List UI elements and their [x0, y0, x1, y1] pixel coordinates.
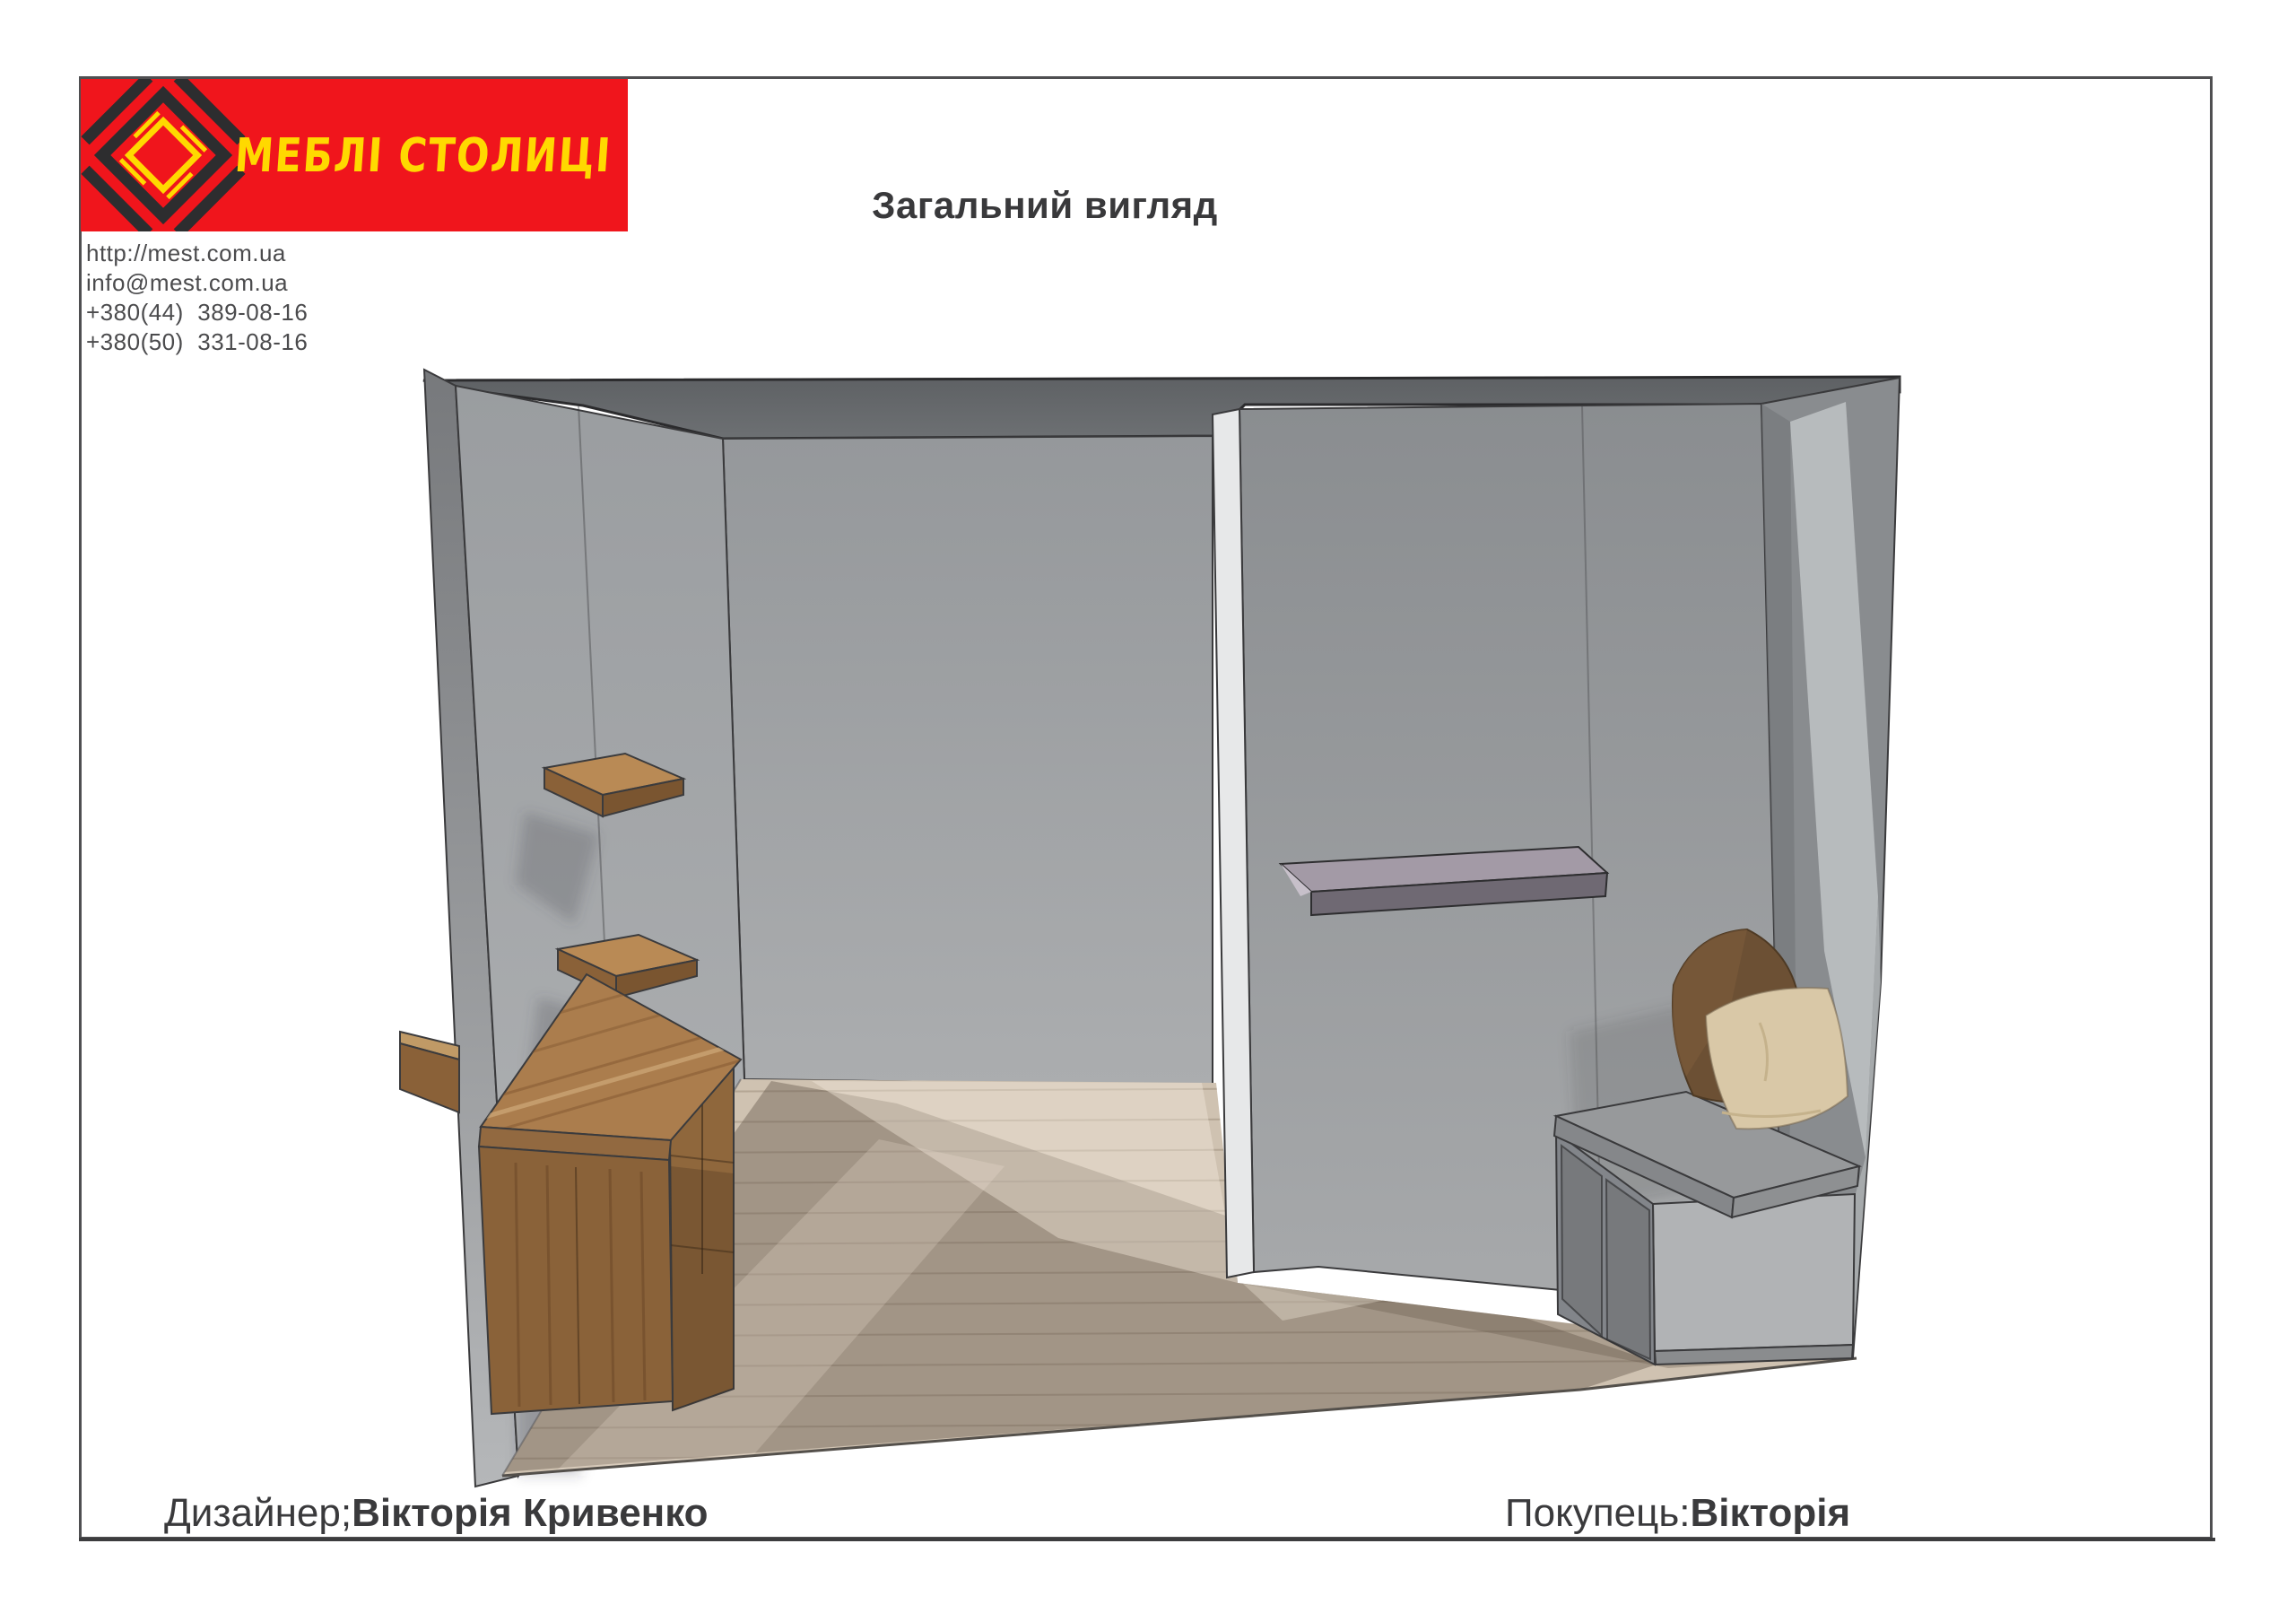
- design-sheet: МЕБЛІ СТОЛИЦІ http://mest.com.ua info@me…: [0, 0, 2296, 1622]
- bench-cushion-cream: [1706, 988, 1848, 1129]
- designer-name: Вікторія Кривенко: [352, 1491, 708, 1535]
- logo-banner: МЕБЛІ СТОЛИЦІ: [81, 79, 628, 231]
- contact-block: http://mest.com.ua info@mest.com.ua +380…: [86, 239, 308, 357]
- customer-caption: Покупець:Вікторія: [1505, 1491, 1850, 1536]
- room-render: [395, 339, 2000, 1498]
- back-wall: [723, 436, 1213, 1086]
- customer-label: Покупець:: [1505, 1491, 1691, 1535]
- diamond-logo-icon: [81, 79, 256, 231]
- website-link[interactable]: http://mest.com.ua: [86, 240, 286, 266]
- brand-logo: МЕБЛІ СТОЛИЦІ: [81, 79, 628, 231]
- designer-caption: Дизайнер;Вікторія Кривенко: [164, 1491, 709, 1536]
- email-link[interactable]: info@mest.com.ua: [86, 269, 288, 296]
- page-title: Загальний вигляд: [668, 184, 1422, 227]
- phone-2: +380(50) 331-08-16: [86, 328, 308, 355]
- brand-name: МЕБЛІ СТОЛИЦІ: [233, 129, 613, 183]
- designer-label: Дизайнер;: [164, 1491, 352, 1535]
- side-wood-ledge: [400, 1032, 459, 1112]
- customer-name: Вікторія: [1691, 1491, 1851, 1535]
- phone-1: +380(44) 389-08-16: [86, 299, 308, 326]
- footer-divider: [79, 1538, 2215, 1541]
